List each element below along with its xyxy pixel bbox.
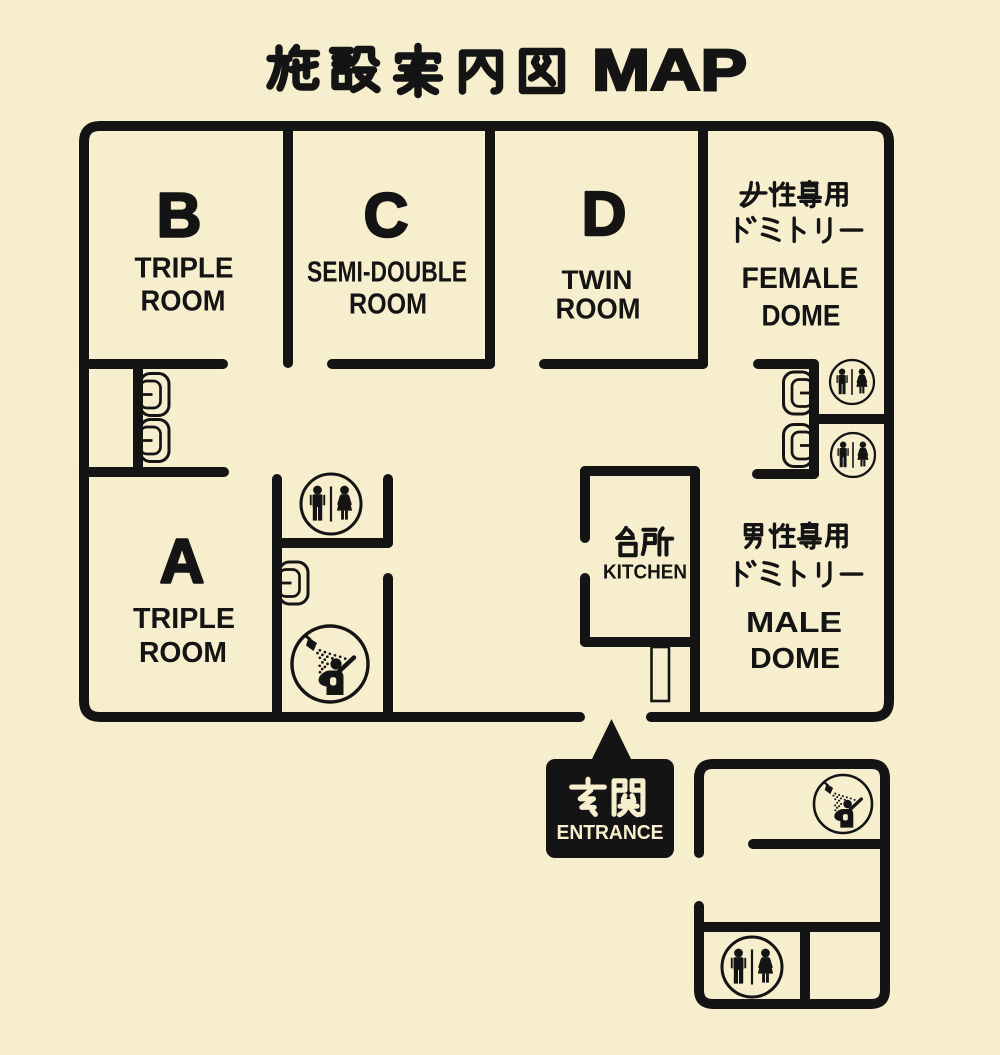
svg-text:ROOM: ROOM: [139, 637, 227, 669]
svg-text:TRIPLE: TRIPLE: [135, 253, 234, 285]
svg-text:A: A: [160, 528, 205, 597]
svg-text:DOME: DOME: [762, 300, 841, 333]
svg-text:KITCHEN: KITCHEN: [603, 562, 687, 584]
svg-text:TWIN: TWIN: [562, 265, 633, 295]
svg-text:MALE: MALE: [746, 607, 842, 639]
svg-text:ROOM: ROOM: [141, 286, 226, 318]
svg-text:B: B: [157, 182, 202, 251]
svg-text:SEMI-DOUBLE: SEMI-DOUBLE: [307, 257, 467, 289]
svg-text:FEMALE: FEMALE: [742, 262, 859, 295]
svg-text:ROOM: ROOM: [556, 294, 641, 326]
svg-text:TRIPLE: TRIPLE: [133, 603, 235, 635]
svg-text:D: D: [582, 180, 627, 249]
svg-text:ROOM: ROOM: [349, 289, 427, 321]
svg-text:DOME: DOME: [750, 643, 840, 675]
svg-text:MAP: MAP: [592, 38, 747, 103]
svg-text:ENTRANCE: ENTRANCE: [557, 821, 664, 844]
svg-text:C: C: [364, 182, 409, 251]
